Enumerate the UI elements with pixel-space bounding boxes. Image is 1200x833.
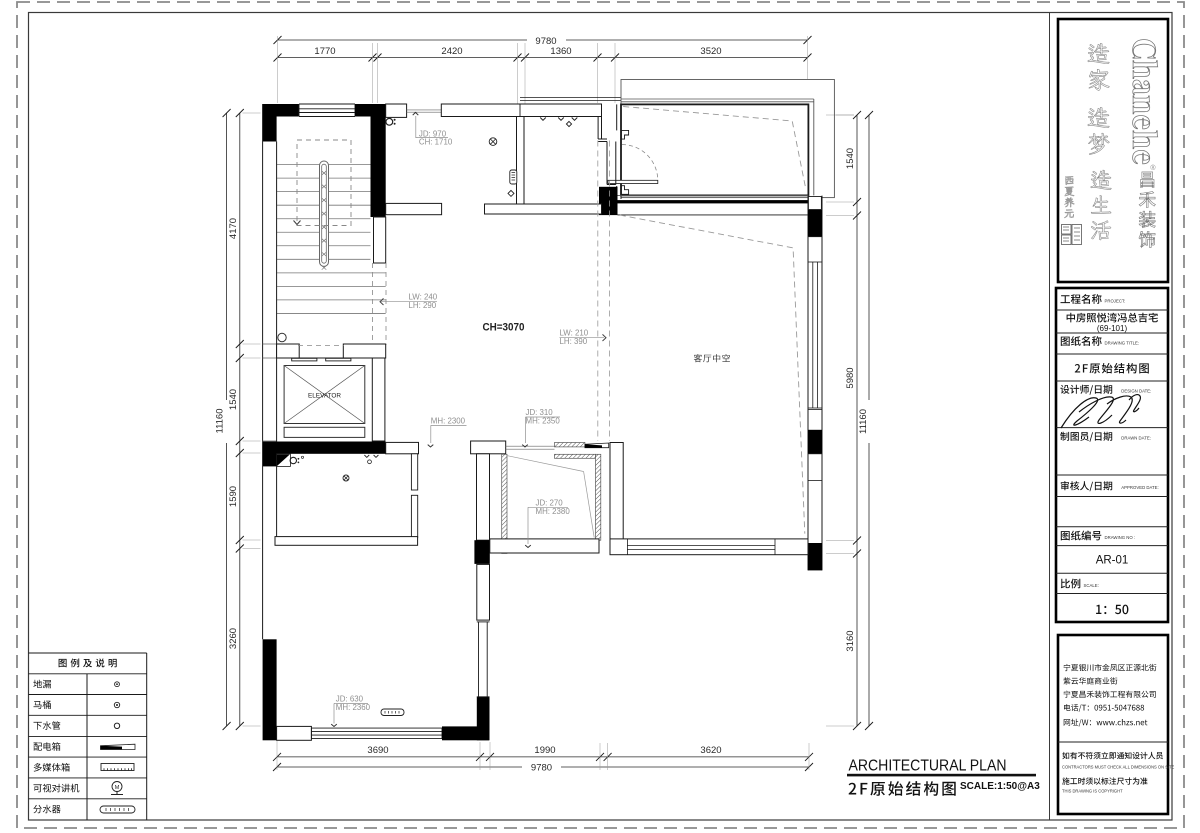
svg-text:DRAWN DATE:: DRAWN DATE: (1121, 436, 1151, 441)
svg-text:1990: 1990 (534, 745, 555, 756)
svg-text:11160: 11160 (858, 409, 869, 434)
svg-text:CH: 1710: CH: 1710 (419, 138, 453, 147)
svg-text:3160: 3160 (845, 630, 856, 651)
svg-text:APPROVED DATE:: APPROVED DATE: (1121, 485, 1158, 490)
svg-text:SCALE:1:50@A3: SCALE:1:50@A3 (960, 781, 1040, 792)
svg-text:LH: 290: LH: 290 (409, 301, 437, 310)
svg-text:3520: 3520 (700, 46, 721, 57)
svg-text:3690: 3690 (367, 745, 388, 756)
svg-text:®: ® (1150, 164, 1156, 172)
svg-text:DRAWING TITLE:: DRAWING TITLE: (1105, 341, 1140, 346)
svg-text:1590: 1590 (228, 486, 239, 507)
svg-text:MH: 2380: MH: 2380 (536, 507, 571, 516)
svg-text:1360: 1360 (550, 46, 571, 57)
svg-text:THIS DRAWING IS COPYRIGHT: THIS DRAWING IS COPYRIGHT (1062, 789, 1123, 794)
svg-text:PROJECT:: PROJECT: (1105, 299, 1126, 304)
svg-text:MH: 2300: MH: 2300 (431, 417, 466, 426)
svg-text:CONTRACTORS MUST CHECK ALL DIM: CONTRACTORS MUST CHECK ALL DIMENSIONS ON… (1062, 765, 1175, 770)
svg-text:(69-101): (69-101) (1097, 324, 1128, 333)
svg-text:9780: 9780 (531, 763, 552, 774)
svg-text:1540: 1540 (228, 389, 239, 410)
svg-text:1540: 1540 (845, 148, 856, 169)
svg-text:SCALE:: SCALE: (1084, 583, 1099, 588)
svg-text:DRAWING NO :: DRAWING NO : (1105, 535, 1136, 540)
svg-text:5980: 5980 (845, 367, 856, 388)
svg-text:4170: 4170 (228, 218, 239, 239)
svg-text:DESIGN DATE:: DESIGN DATE: (1121, 389, 1151, 394)
svg-text:M: M (115, 785, 120, 791)
svg-text:ARCHITECTURAL PLAN: ARCHITECTURAL PLAN (849, 758, 1007, 775)
svg-text:1770: 1770 (314, 46, 335, 57)
svg-text:LH: 390: LH: 390 (560, 337, 588, 346)
svg-text:11160: 11160 (215, 408, 226, 433)
svg-text:ELEVATOR: ELEVATOR (308, 392, 341, 399)
svg-text:MH: 2360: MH: 2360 (336, 703, 371, 712)
svg-text:3620: 3620 (700, 745, 721, 756)
svg-text:AR-01: AR-01 (1096, 555, 1129, 567)
svg-text:MH: 2350: MH: 2350 (526, 417, 561, 426)
svg-text:3260: 3260 (228, 628, 239, 649)
svg-text:CH=3070: CH=3070 (483, 322, 525, 334)
svg-text:2420: 2420 (441, 46, 462, 57)
